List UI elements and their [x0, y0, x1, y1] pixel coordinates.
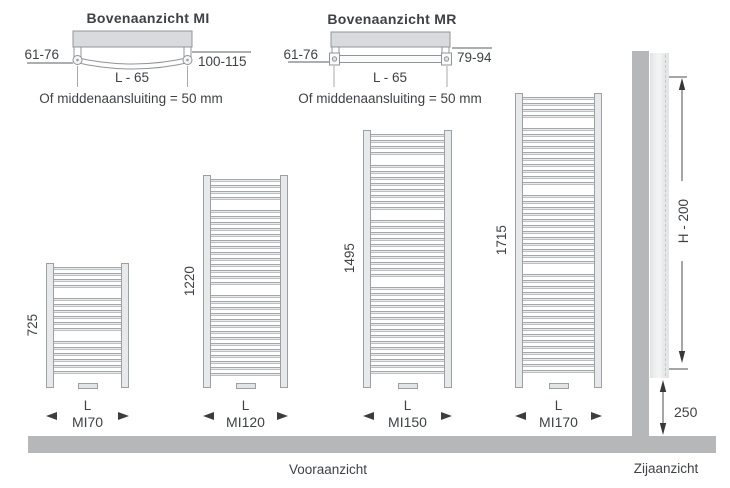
rung: [211, 337, 280, 340]
rung: [211, 276, 280, 279]
radiator-model-label: MI170: [519, 415, 599, 430]
radiator-bottom-plug: [549, 383, 569, 389]
rung: [523, 97, 594, 100]
height-dimension-label: H - 200: [677, 181, 691, 261]
rung: [371, 341, 444, 344]
rung-group: [54, 267, 121, 288]
rung: [211, 246, 280, 249]
rung: [211, 343, 280, 346]
rung: [371, 323, 444, 326]
rung: [54, 371, 121, 374]
rung: [523, 152, 594, 155]
rung: [523, 195, 594, 198]
rung: [371, 183, 444, 186]
radiator-height-label: 725: [26, 295, 40, 355]
rung: [371, 293, 444, 296]
top-view-mr-title: Bovenaanzicht MR: [317, 12, 467, 27]
side-view-wall: [632, 51, 649, 436]
rung: [211, 185, 280, 188]
rung: [523, 158, 594, 161]
rung: [523, 237, 594, 240]
rung: [211, 301, 280, 304]
rung: [523, 261, 594, 264]
rung-group: [523, 195, 594, 264]
rung: [371, 220, 444, 223]
rung: [54, 267, 121, 270]
mr-length-dim: L - 65: [355, 71, 425, 85]
rung-group: [211, 295, 280, 376]
mi-curved-tube: [74, 57, 191, 69]
rung: [371, 365, 444, 368]
rung: [211, 240, 280, 243]
rung: [523, 340, 594, 343]
rung: [54, 359, 121, 362]
radiator-model-label: MI70: [48, 415, 128, 430]
rung-group: [54, 341, 121, 374]
rung-group: [523, 274, 594, 373]
clearance-arrowhead-down: [660, 423, 666, 435]
rung: [523, 358, 594, 361]
rung: [371, 317, 444, 320]
rung-group: [523, 97, 594, 118]
rung-group: [371, 134, 444, 155]
radiator-mi70: [46, 263, 129, 388]
rung: [523, 176, 594, 179]
rung: [211, 222, 280, 225]
mr-collector: [331, 32, 450, 47]
radiator-bottom-plug: [78, 383, 98, 389]
rung: [523, 219, 594, 222]
rung: [371, 371, 444, 374]
rung: [371, 262, 444, 265]
radiator-length-label: L: [393, 399, 423, 413]
rung: [523, 364, 594, 367]
rung: [211, 349, 280, 352]
rung: [523, 280, 594, 283]
radiator-rungs: [523, 97, 594, 382]
rung: [523, 164, 594, 167]
rung: [211, 325, 280, 328]
rung: [371, 146, 444, 149]
rung: [523, 182, 594, 185]
rung: [54, 298, 121, 301]
rung: [211, 264, 280, 267]
rung: [211, 295, 280, 298]
rung: [523, 213, 594, 216]
rung: [211, 355, 280, 358]
rung: [523, 292, 594, 295]
rung: [54, 347, 121, 350]
rung: [523, 316, 594, 319]
rung: [371, 152, 444, 155]
rung: [54, 310, 121, 313]
radiator-left-tube: [363, 130, 371, 388]
rung: [371, 244, 444, 247]
rung: [523, 255, 594, 258]
rung: [371, 195, 444, 198]
mi-right-connection-dim: 100-115: [198, 55, 258, 69]
front-view-caption: Vooraanzicht: [248, 463, 408, 477]
rung: [211, 361, 280, 364]
rung: [371, 140, 444, 143]
radiator-dimension-diagram: Bovenaanzicht MI 61-76 100-115 L - 65 Of…: [0, 0, 730, 488]
rung: [523, 322, 594, 325]
radiator-height-label: 1220: [183, 251, 197, 311]
rung: [211, 331, 280, 334]
rung-group: [211, 210, 280, 285]
rung: [371, 201, 444, 204]
rung: [211, 373, 280, 376]
rung: [371, 359, 444, 362]
rung: [211, 258, 280, 261]
rung: [523, 207, 594, 210]
radiator-length-label: L: [231, 399, 261, 413]
rung: [54, 328, 121, 331]
radiator-model-label: MI150: [368, 415, 448, 430]
rung: [523, 286, 594, 289]
radiator-height-label: 1495: [343, 228, 357, 288]
rung: [211, 210, 280, 213]
rung: [523, 334, 594, 337]
rung-group: [54, 298, 121, 331]
rung: [211, 216, 280, 219]
clearance-arrowhead-up: [660, 380, 666, 392]
rung: [211, 179, 280, 182]
rung: [211, 228, 280, 231]
radiator-mi150: [363, 130, 452, 388]
radiator-rungs: [54, 267, 121, 382]
rung: [523, 225, 594, 228]
radiator-rungs: [211, 179, 280, 382]
rung: [211, 319, 280, 322]
mr-right-connection-dim: 79-94: [457, 51, 507, 65]
side-view-radiator-profile: [650, 53, 669, 378]
rung-group: [371, 165, 444, 210]
rung: [523, 346, 594, 349]
mi-length-dim: L - 65: [97, 71, 167, 85]
rung-group: [211, 179, 280, 200]
rung: [371, 335, 444, 338]
rung: [54, 353, 121, 356]
rung: [371, 238, 444, 241]
rung: [54, 365, 121, 368]
rung: [523, 231, 594, 234]
rung: [371, 274, 444, 277]
rung: [523, 103, 594, 106]
rung: [371, 171, 444, 174]
rung: [54, 273, 121, 276]
side-view-caption: Zijaanzicht: [606, 462, 726, 476]
radiator-length-label: L: [73, 399, 103, 413]
radiator-model-label: MI120: [206, 415, 286, 430]
radiator-length-label: L: [544, 399, 574, 413]
rung-group: [523, 128, 594, 185]
rung: [371, 287, 444, 290]
rung: [523, 249, 594, 252]
rung: [371, 268, 444, 271]
rung: [54, 285, 121, 288]
rung: [371, 305, 444, 308]
rung: [54, 341, 121, 344]
rung: [523, 274, 594, 277]
rung: [54, 322, 121, 325]
rung: [211, 282, 280, 285]
rung: [371, 226, 444, 229]
rung: [371, 165, 444, 168]
mr-center-connection-note: Of middenaansluiting = 50 mm: [288, 92, 492, 106]
rung: [371, 250, 444, 253]
rung: [523, 109, 594, 112]
radiator-right-tube: [594, 93, 602, 388]
radiator-right-tube: [280, 175, 288, 388]
rung: [371, 311, 444, 314]
rung: [523, 201, 594, 204]
radiator-profile-dashed-axis: [665, 55, 666, 376]
rung: [371, 134, 444, 137]
radiator-mi120: [203, 175, 288, 388]
rung: [523, 310, 594, 313]
rung: [211, 367, 280, 370]
rung: [523, 298, 594, 301]
radiator-rungs: [371, 134, 444, 382]
rung: [523, 134, 594, 137]
rung: [523, 243, 594, 246]
rung: [523, 352, 594, 355]
mi-collector: [73, 31, 192, 47]
rung: [371, 177, 444, 180]
mr-straight-tube: [339, 56, 442, 63]
rung: [371, 256, 444, 259]
mr-left-connection-dim: 61-76: [272, 48, 318, 62]
radiator-mi170: [515, 93, 602, 388]
rung: [211, 270, 280, 273]
rung: [371, 329, 444, 332]
rung: [523, 304, 594, 307]
rung: [211, 307, 280, 310]
rung: [54, 304, 121, 307]
rung: [523, 170, 594, 173]
radiator-left-tube: [203, 175, 211, 388]
rung: [371, 207, 444, 210]
rung-group: [371, 220, 444, 277]
h-dim-arrowhead-down: [679, 351, 685, 363]
floor-bar: [28, 436, 716, 453]
rung: [371, 347, 444, 350]
radiator-height-label: 1715: [495, 210, 509, 270]
h-dim-arrowhead-up: [679, 78, 685, 90]
top-view-mi-title: Bovenaanzicht MI: [73, 11, 223, 26]
mi-center-connection-note: Of middenaansluiting = 50 mm: [29, 92, 233, 106]
rung: [523, 140, 594, 143]
radiator-right-tube: [121, 263, 129, 388]
rung: [211, 313, 280, 316]
rung: [523, 328, 594, 331]
rung: [371, 232, 444, 235]
rung: [523, 128, 594, 131]
rung-group: [371, 287, 444, 374]
rung: [371, 189, 444, 192]
rung: [371, 299, 444, 302]
rung: [211, 197, 280, 200]
rung: [523, 146, 594, 149]
radiator-bottom-plug: [398, 383, 418, 389]
radiator-right-tube: [444, 130, 452, 388]
rung: [54, 279, 121, 282]
rung: [54, 316, 121, 319]
rung: [211, 234, 280, 237]
floor-clearance-label: 250: [674, 405, 718, 420]
rung: [523, 370, 594, 373]
radiator-left-tube: [515, 93, 523, 388]
radiator-left-tube: [46, 263, 54, 388]
radiator-bottom-plug: [236, 383, 256, 389]
rung: [211, 191, 280, 194]
mi-left-connection-dim: 61-76: [13, 48, 59, 62]
rung: [523, 115, 594, 118]
rung: [371, 353, 444, 356]
rung: [211, 252, 280, 255]
